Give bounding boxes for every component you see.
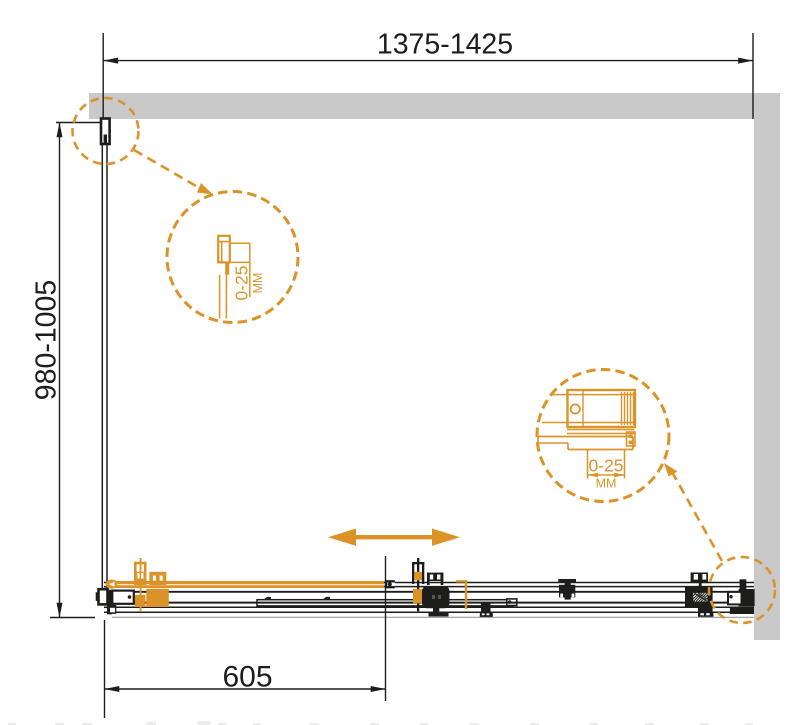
svg-text:MM: MM (596, 477, 617, 491)
svg-text:980-1005: 980-1005 (31, 280, 63, 400)
svg-text:1375-1425: 1375-1425 (377, 29, 513, 61)
svg-text:MM: MM (251, 273, 265, 294)
svg-text:605: 605 (222, 661, 272, 694)
svg-text:0-25: 0-25 (588, 456, 623, 476)
svg-text:0-25: 0-25 (231, 265, 251, 300)
